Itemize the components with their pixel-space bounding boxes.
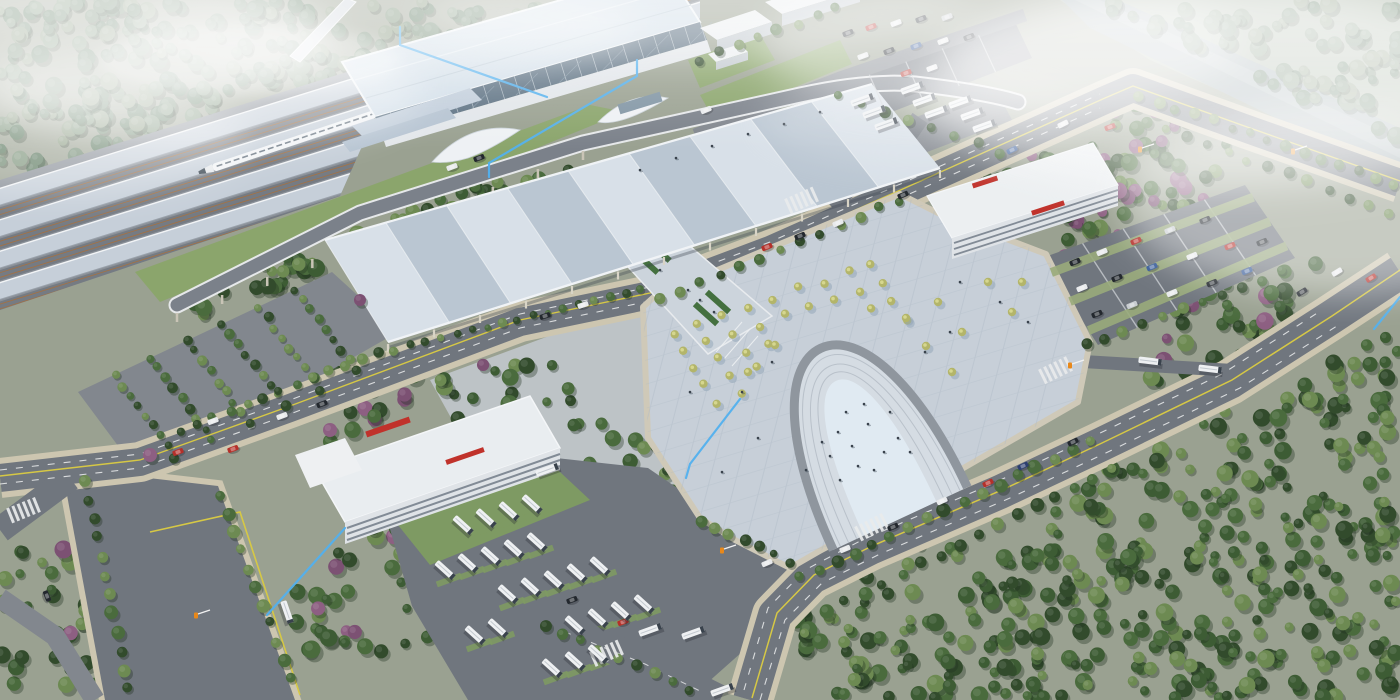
station-aerial-scene — [0, 0, 1400, 700]
aerial-rendering-canvas — [0, 0, 1400, 700]
top-haze-veil — [0, 0, 1400, 150]
